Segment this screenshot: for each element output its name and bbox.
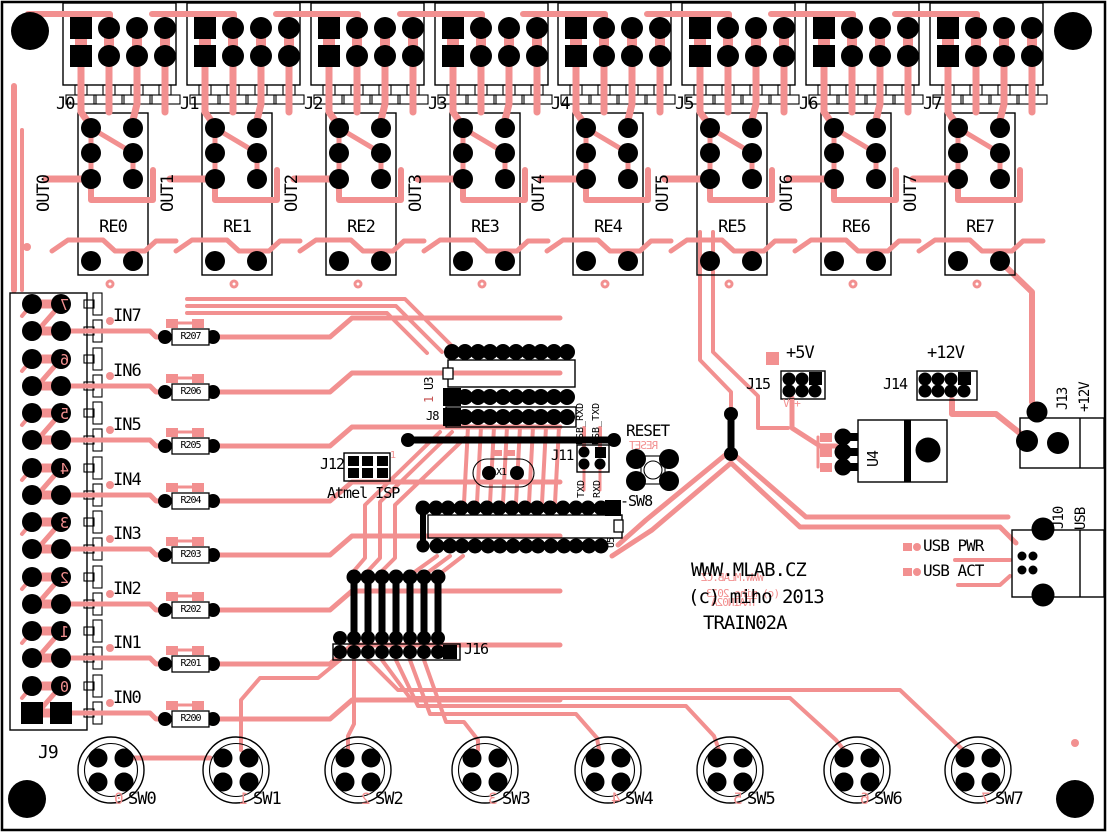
label-r207: R207 <box>172 332 209 343</box>
bottom-digit-sw5: 5 <box>734 791 743 808</box>
label-j15: J15 <box>746 377 770 393</box>
label-out4: OUT4 <box>531 148 549 212</box>
bottom-digit-sw7: 7 <box>982 791 991 808</box>
mounting-hole <box>8 780 46 818</box>
bottom-digit-sw0: 0 <box>115 791 124 808</box>
label-sw1: SW1 <box>253 791 281 809</box>
label-txd: TXD <box>577 468 588 498</box>
label-r205: R205 <box>172 441 209 452</box>
label-sw8: -SW8 <box>620 494 652 510</box>
label-out7: OUT7 <box>903 148 921 212</box>
u3-notch <box>443 368 453 379</box>
bottom-digit-in2: 2 <box>61 571 69 587</box>
label-re4: RE4 <box>573 219 643 237</box>
label-sw4: SW4 <box>625 791 653 809</box>
label-in6: IN6 <box>113 363 141 381</box>
label-sw3: SW3 <box>502 791 530 809</box>
label-in1: IN1 <box>113 635 141 653</box>
label-usb-txd: USB_TXD <box>592 385 603 445</box>
label-reset: RESET <box>626 423 669 440</box>
label-in5: IN5 <box>113 417 141 435</box>
label-plus5v: +5V <box>786 345 814 363</box>
label-j12: J12 <box>320 457 344 473</box>
label-usb-rxd: USB_RXD <box>576 385 587 445</box>
label-j4: J4 <box>551 96 569 114</box>
mounting-hole <box>1056 780 1094 818</box>
label-website: WWW.MLAB.CZ <box>691 561 806 581</box>
j9-pin1-pad <box>21 702 43 724</box>
bottom-digit-in0: 0 <box>61 680 69 696</box>
plus5v-test-pad <box>766 352 779 365</box>
label-re6: RE6 <box>821 219 891 237</box>
label-board-name: TRAIN02A <box>703 614 787 634</box>
bottom-digit-in3: 3 <box>61 516 69 532</box>
label-r204: R204 <box>172 496 209 507</box>
label-j9: J9 <box>38 744 58 763</box>
label-j2: J2 <box>304 96 322 114</box>
pcb-artwork <box>0 0 1107 832</box>
mounting-hole <box>1054 12 1092 50</box>
label-r203: R203 <box>172 550 209 561</box>
label-j11: J11 <box>551 449 573 464</box>
label-sw2: SW2 <box>375 791 403 809</box>
label-in4: IN4 <box>113 472 141 490</box>
label-re2: RE2 <box>326 219 396 237</box>
label-j6: J6 <box>799 96 817 114</box>
bottom-digit-sw4: 4 <box>612 791 621 808</box>
bottom-digit-sw3: 3 <box>489 791 498 808</box>
bottom-label-plus5v: +5V <box>784 398 801 410</box>
sw8-jumper-pad <box>605 500 621 516</box>
label-u3: U3 <box>423 366 436 390</box>
bottom-label-reset: RESET <box>630 440 658 452</box>
label-in7: IN7 <box>113 308 141 326</box>
usb-pwr-led-pad <box>903 543 912 551</box>
j16-pads-and-wires <box>333 570 457 660</box>
label-out5: OUT5 <box>655 148 673 212</box>
label-re5: RE5 <box>697 219 767 237</box>
label-j12-pin1: 1 <box>390 451 395 462</box>
label-out1: OUT1 <box>160 148 178 212</box>
label-out0: OUT0 <box>36 148 54 212</box>
label-j14: J14 <box>883 377 907 393</box>
label-j13: J13 <box>1056 368 1071 410</box>
label-j13-voltage: +12V <box>1078 362 1093 412</box>
label-j1: J1 <box>180 96 198 114</box>
bottom-digit-sw2: 2 <box>362 791 371 808</box>
label-sw0: SW0 <box>128 791 156 809</box>
label-sw7: SW7 <box>995 791 1023 809</box>
label-r200: R200 <box>172 714 209 725</box>
label-copyright: (c) miho 2013 <box>688 588 824 608</box>
label-j0: J0 <box>56 96 74 114</box>
usb-act-led-pad <box>903 568 912 576</box>
label-j8: J8 <box>426 410 438 423</box>
label-r206: R206 <box>172 387 209 398</box>
bottom-digit-in7: 7 <box>61 298 69 314</box>
label-rxd: RXD <box>593 468 604 498</box>
label-in0: IN0 <box>113 690 141 708</box>
label-j7: J7 <box>923 96 941 114</box>
label-plus12v: +12V <box>927 345 964 363</box>
label-out3: OUT3 <box>408 148 426 212</box>
label-atmel-isp: Atmel ISP <box>327 486 399 502</box>
bottom-digit-in6: 6 <box>61 353 69 369</box>
label-re3: RE3 <box>450 219 520 237</box>
label-j5: J5 <box>675 96 693 114</box>
label-j16: J16 <box>464 642 488 658</box>
label-in3: IN3 <box>113 526 141 544</box>
label-u3-pin1: 1 <box>423 389 436 403</box>
bottom-digit-in1: 1 <box>61 625 69 641</box>
label-out2: OUT2 <box>284 148 302 212</box>
label-x1: X1 <box>496 468 506 479</box>
bottom-digit-sw6: 6 <box>861 791 870 808</box>
label-r201: R201 <box>172 659 209 670</box>
label-re0: RE0 <box>78 219 148 237</box>
label-u4: U4 <box>866 437 882 467</box>
label-r202: R202 <box>172 605 209 616</box>
pcb-board: J0 J1 J2 J3 J4 J5 J6 J7 OUT0 OUT1 OUT2 O… <box>0 0 1107 832</box>
label-usb-pwr: USB PWR <box>923 538 983 555</box>
label-j10: J10 <box>1052 487 1067 529</box>
label-j3: J3 <box>428 96 446 114</box>
label-u5: U5 <box>607 522 618 548</box>
label-out6: OUT6 <box>779 148 797 212</box>
mounting-hole <box>11 12 49 50</box>
label-re7: RE7 <box>945 219 1015 237</box>
label-sw5: SW5 <box>747 791 775 809</box>
label-re1: RE1 <box>202 219 272 237</box>
label-sw6: SW6 <box>874 791 902 809</box>
label-j10-type: USB <box>1074 484 1089 530</box>
label-usb-act: USB ACT <box>923 563 983 580</box>
j15-pads <box>783 372 823 398</box>
bottom-digit-in5: 5 <box>61 407 69 423</box>
bottom-digit-in4: 4 <box>61 462 69 478</box>
label-in2: IN2 <box>113 581 141 599</box>
bottom-digit-sw1: 1 <box>240 791 249 808</box>
